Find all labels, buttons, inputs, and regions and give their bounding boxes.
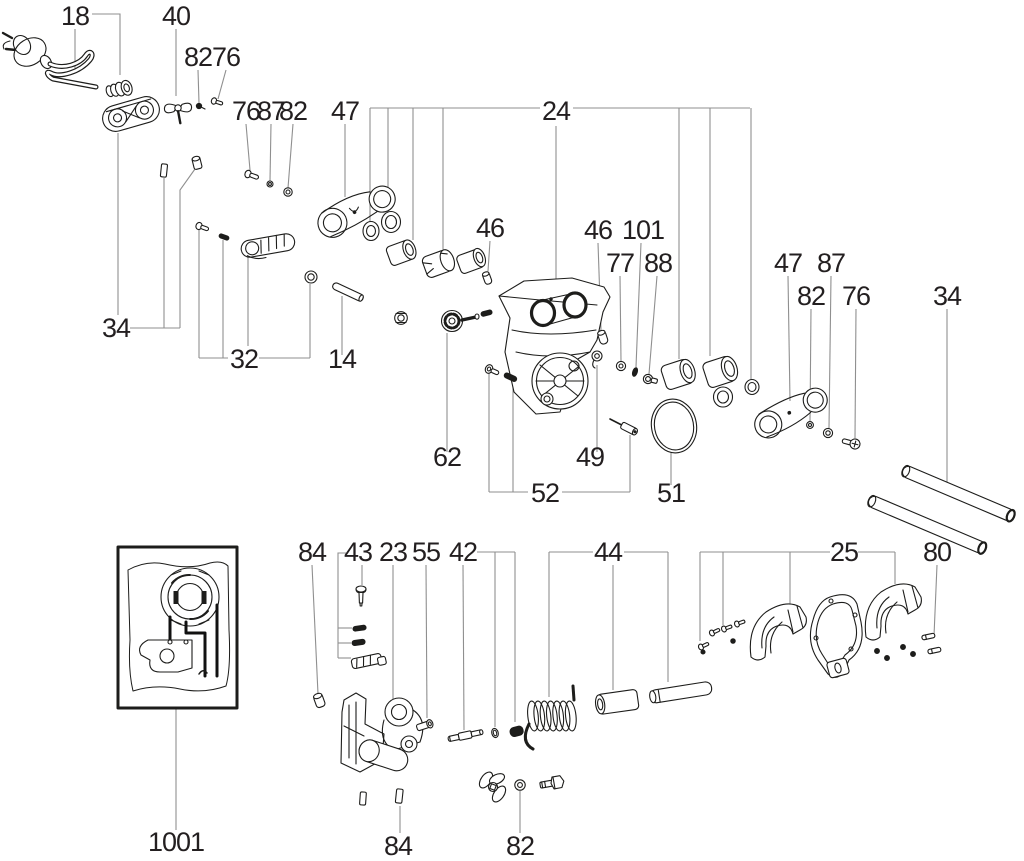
part-label-link-plate: 47 xyxy=(331,96,359,126)
part-pin xyxy=(928,647,942,654)
part-roll-pin xyxy=(352,639,366,646)
part-label-wiring-diagram: 1001 xyxy=(148,827,204,857)
part-screw xyxy=(356,586,366,606)
part-screw xyxy=(211,97,224,107)
part-label-screw: 76 xyxy=(212,42,240,72)
part-bushing xyxy=(660,357,698,391)
part-pin xyxy=(482,271,493,285)
part-label-spring-kit: 44 xyxy=(594,537,623,567)
part-pin xyxy=(360,792,367,805)
part-label-screw: 76 xyxy=(842,281,870,311)
part-plug xyxy=(509,725,524,737)
part-bushing xyxy=(702,354,741,389)
part-label-washer: 77 xyxy=(606,248,634,278)
part-nut xyxy=(911,652,916,657)
part-label-pin: 46 xyxy=(584,215,612,245)
leader-line xyxy=(312,565,318,694)
leader-line xyxy=(426,565,427,718)
part-screw xyxy=(734,618,746,627)
part-gear-housing xyxy=(499,278,610,414)
part-nut xyxy=(875,649,880,654)
part-label-latch-kit: 43 xyxy=(344,537,372,567)
part-stepped-pin xyxy=(447,728,483,742)
part-roll-pin xyxy=(219,233,230,240)
part-screw xyxy=(642,373,658,386)
part-label-seal: 101 xyxy=(622,215,664,245)
part-o-ring xyxy=(491,728,500,739)
part-label-gear-housing: 24 xyxy=(542,96,571,126)
part-label-retaining-clip: 49 xyxy=(576,442,604,472)
part-label-pin-set: 52 xyxy=(531,478,559,508)
part-bolt xyxy=(539,775,565,791)
part-ring-washer xyxy=(363,212,401,241)
part-screw xyxy=(416,719,434,732)
part-label-pivot-bracket: 23 xyxy=(379,537,407,567)
part-label-link-plate: 47 xyxy=(774,248,802,278)
part-label-stepped-pin: 42 xyxy=(449,537,477,567)
leader-lines xyxy=(75,14,947,833)
part-label-washer: 87 xyxy=(817,248,845,278)
part-label-washer: 82 xyxy=(797,281,825,311)
part-label-handle-set: 25 xyxy=(830,537,858,567)
leader-line xyxy=(92,14,120,75)
part-label-pin: 84 xyxy=(298,537,327,567)
part-pin xyxy=(313,692,326,708)
part-detent-pin xyxy=(608,416,638,436)
leader-line xyxy=(246,124,250,170)
part-cord-grommet xyxy=(105,79,134,102)
part-label-wing-bolt: 40 xyxy=(162,1,190,31)
leader-line xyxy=(829,276,831,428)
part-wiring-diagram xyxy=(118,547,237,708)
part-pin xyxy=(597,329,609,345)
part-label-screw: 76 xyxy=(232,96,260,126)
part-latch xyxy=(351,652,387,671)
leader-line xyxy=(288,124,293,188)
part-label-nut: 82 xyxy=(279,96,307,126)
part-label-guide-rods: 34 xyxy=(933,281,962,311)
leader-line xyxy=(636,243,641,367)
part-o-ring xyxy=(305,271,317,283)
leader-line xyxy=(180,169,195,328)
part-wing-bolt xyxy=(163,97,196,127)
part-screw xyxy=(841,436,861,450)
leader-line xyxy=(788,276,790,401)
part-screw xyxy=(244,169,260,181)
part-washer xyxy=(267,181,273,187)
part-pivot-bracket xyxy=(341,693,423,774)
part-label-pin: 46 xyxy=(476,213,504,243)
leader-line xyxy=(270,124,271,181)
part-pin xyxy=(922,633,936,640)
part-label-washer: 82 xyxy=(506,831,534,861)
leader-line xyxy=(463,565,464,730)
part-handle-shell-left xyxy=(750,604,806,660)
part-washer xyxy=(616,361,625,370)
part-torsion-spring xyxy=(525,686,577,749)
part-label-lock-lever: 32 xyxy=(230,344,258,374)
part-label-screw: 88 xyxy=(644,248,672,278)
leader-line xyxy=(934,565,937,636)
leader-line xyxy=(338,553,346,658)
part-label-set-screw: 82 xyxy=(184,42,212,72)
part-label-cable-clamp: 34 xyxy=(102,313,131,343)
part-hex-nut xyxy=(395,312,408,325)
part-seal xyxy=(632,367,639,377)
part-label-pin: 80 xyxy=(923,537,951,567)
part-bushing xyxy=(455,247,488,275)
part-link-plate xyxy=(750,386,833,441)
part-screw xyxy=(484,363,500,377)
part-cable-clamp xyxy=(100,94,163,135)
part-pin xyxy=(191,156,202,170)
part-bushing xyxy=(385,238,418,266)
part-handle-frame xyxy=(810,595,862,679)
part-power-cord xyxy=(3,32,96,87)
part-nut xyxy=(885,656,890,661)
leader-line xyxy=(620,276,621,361)
part-screw xyxy=(709,627,721,637)
leader-line xyxy=(488,241,490,271)
part-label-o-ring: 51 xyxy=(657,478,685,508)
part-screw xyxy=(698,641,710,651)
leader-line xyxy=(855,309,856,438)
part-label-pin: 84 xyxy=(384,831,413,861)
part-set-screw xyxy=(196,103,205,109)
part-pin xyxy=(481,310,493,317)
part-rod xyxy=(649,681,713,704)
part-o-ring xyxy=(647,396,701,457)
part-pin xyxy=(395,789,403,804)
leader-line xyxy=(218,70,226,99)
part-nut xyxy=(901,645,906,650)
leader-line xyxy=(198,70,199,103)
part-label-knob: 62 xyxy=(433,442,461,472)
part-tube xyxy=(594,689,639,715)
part-pin xyxy=(160,164,167,178)
part-screw xyxy=(195,222,210,233)
part-label-power-cord: 18 xyxy=(61,1,89,31)
part-handle-shell-right xyxy=(865,584,921,640)
part-nut xyxy=(731,639,735,643)
part-label-pin: 14 xyxy=(328,344,357,374)
part-slotted-bushing xyxy=(421,248,457,279)
part-wing-knob xyxy=(477,770,509,804)
part-pin xyxy=(332,282,365,302)
part-lock-lever xyxy=(240,232,297,261)
leader-line xyxy=(649,276,657,374)
exploded-parts-diagram: 1840827676878247244646101778847878276343… xyxy=(0,0,1024,861)
part-knob xyxy=(442,311,480,332)
part-roll-pin xyxy=(353,625,366,631)
part-washer xyxy=(515,780,525,790)
part-nut xyxy=(284,188,292,196)
part-label-screw: 55 xyxy=(412,537,440,567)
part-nut xyxy=(701,650,705,654)
